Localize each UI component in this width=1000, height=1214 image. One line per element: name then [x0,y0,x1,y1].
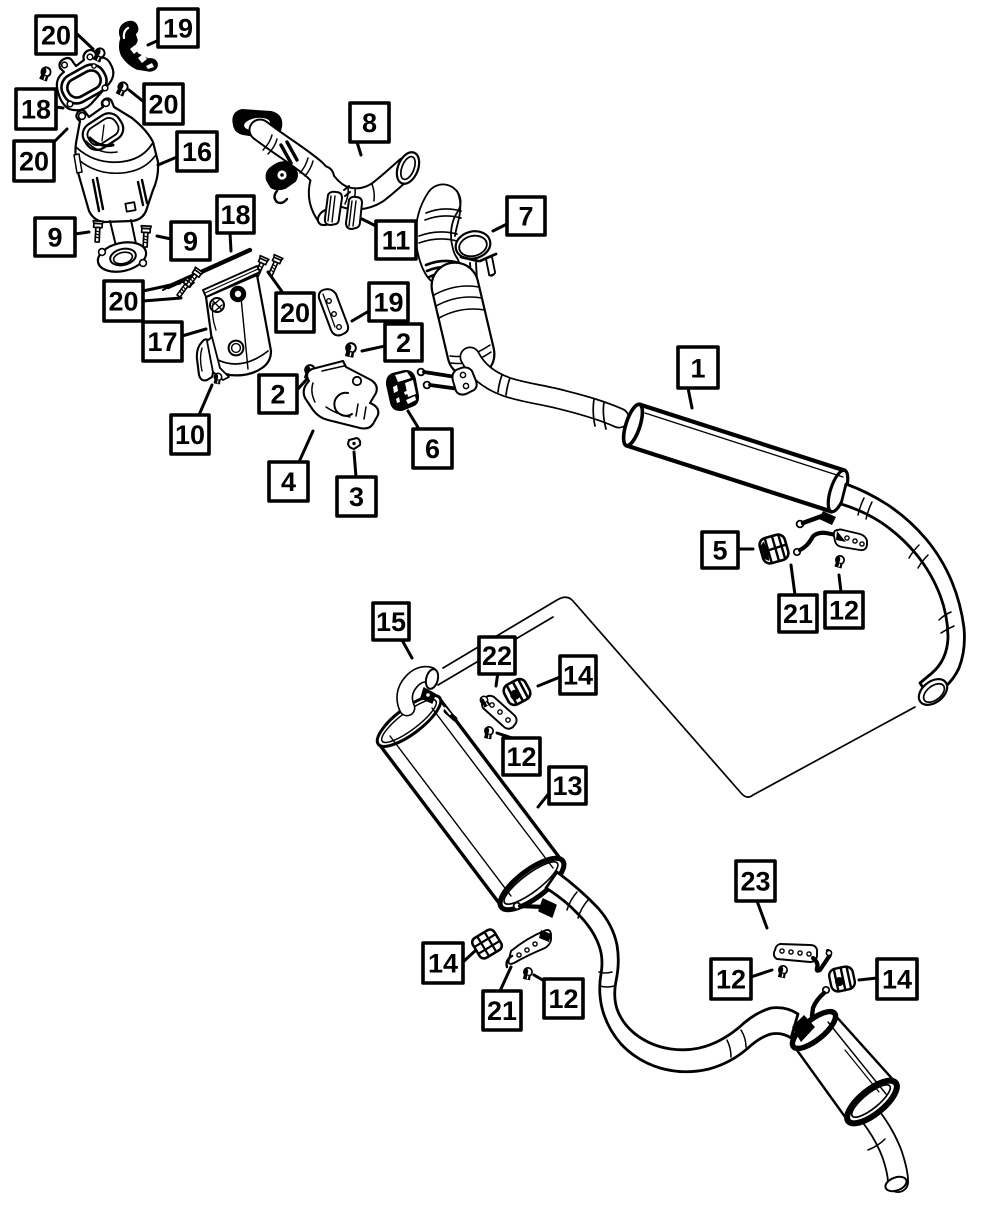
svg-text:20: 20 [41,21,71,51]
svg-text:14: 14 [882,965,912,995]
svg-text:15: 15 [376,607,406,637]
svg-text:23: 23 [740,867,770,897]
svg-text:20: 20 [280,298,310,328]
svg-text:12: 12 [829,596,859,626]
svg-text:20: 20 [19,147,49,177]
svg-text:14: 14 [428,949,458,979]
svg-text:9: 9 [183,227,198,257]
svg-text:5: 5 [712,536,727,566]
svg-text:14: 14 [563,661,593,691]
svg-text:1: 1 [690,354,705,384]
svg-text:17: 17 [147,327,177,357]
svg-text:20: 20 [148,90,178,120]
svg-text:22: 22 [482,641,512,671]
svg-text:7: 7 [518,202,533,232]
svg-text:9: 9 [47,223,62,253]
svg-text:18: 18 [21,95,51,125]
svg-text:19: 19 [373,288,403,318]
svg-text:4: 4 [281,467,296,497]
svg-text:3: 3 [349,482,364,512]
svg-text:12: 12 [506,742,536,772]
svg-text:2: 2 [270,380,285,410]
svg-text:21: 21 [783,599,813,629]
svg-text:6: 6 [425,434,440,464]
svg-text:12: 12 [548,984,578,1014]
svg-text:11: 11 [382,226,411,256]
svg-text:13: 13 [552,771,582,801]
svg-text:8: 8 [362,108,377,138]
svg-text:20: 20 [108,287,138,317]
svg-text:19: 19 [163,14,193,44]
svg-text:21: 21 [487,996,517,1026]
svg-text:18: 18 [220,200,250,230]
svg-text:12: 12 [716,965,746,995]
svg-text:16: 16 [182,137,212,167]
svg-text:10: 10 [175,420,205,450]
svg-text:2: 2 [396,328,411,358]
